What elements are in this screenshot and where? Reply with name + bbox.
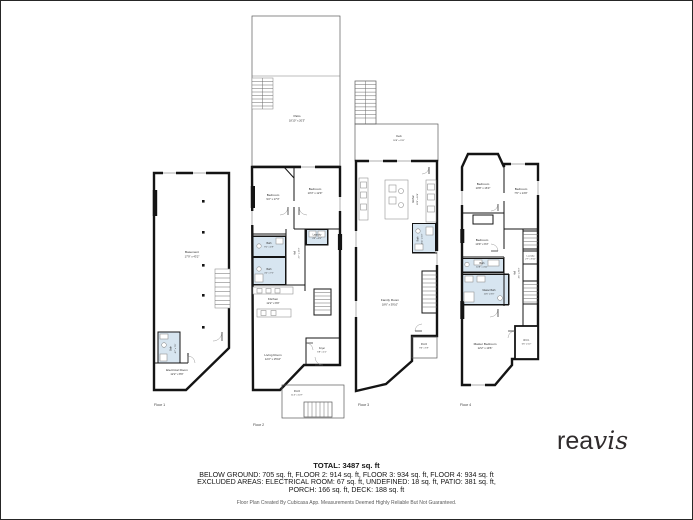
floor3-porch-dims: 9'6" x 5'9" (419, 348, 429, 350)
floor2-porch-label: Porch (294, 390, 301, 393)
total-area-text: TOTAL: 3487 sq. ft (1, 461, 692, 470)
floor4-bedroom-top-dims: 10'8" x 16'3" (476, 186, 491, 190)
floor4-wic-walls (515, 326, 538, 359)
area-summary: TOTAL: 3487 sq. ft BELOW GROUND: 705 sq.… (1, 461, 692, 506)
floor4-laundry-walls (523, 251, 538, 264)
floor2-patio-dims: 18'10" x 20'3" (289, 119, 305, 123)
floor3-bath-label: Bath (417, 236, 420, 242)
floor2-bath-upper-label: Bath (267, 242, 273, 245)
floor3-kitchen-dims: 18'6" x 16'4" (417, 193, 419, 205)
floor4-master-bedroom-label: Master Bedroom (474, 342, 497, 346)
floor4-bedroom-top-label: Bedroom (477, 182, 490, 186)
floor4-stairs-lower-icon (523, 281, 538, 304)
floor1-electrical-dims: 12'2" x 8'9" (170, 372, 183, 376)
floor2-bath-lower-label: Bath (267, 268, 273, 271)
logo-text-italic: vis (593, 426, 628, 455)
floor4-wic-label: W.I.C. (523, 339, 530, 342)
floor2-bath-lower-dims: 4'2" x 7'5" (264, 273, 274, 275)
floor1-plan: Bath 4'7" x 7'9" Basement 17'9" x 43'2" … (153, 171, 230, 407)
floor3-family-room-label: Family Room (381, 298, 400, 302)
floor3-deck-dims: 18'8" x 9'11" (393, 140, 405, 142)
floor4-hall-label: Hall (514, 270, 517, 275)
floor4-bedroom-mid-dims: 10'9" x 9'3" (475, 242, 488, 246)
floor4-bedroom-right-label: Bedroom (515, 187, 528, 191)
floor4-laundry-dims: 2'7" x 8'11" (525, 259, 536, 261)
floor1-bath-dims: 4'7" x 7'9" (175, 344, 177, 354)
floor4-bath-dims: 10'8" x 4'11" (476, 267, 488, 269)
floor4-plan: Laundry 2'7" x 8'11" W.I.C. 6'6" x 6'2" … (460, 154, 540, 407)
floor3-deck-outline (355, 124, 438, 161)
floor3-deck-label: Deck (396, 135, 402, 138)
floor4-bedroom-mid-label: Bedroom (476, 238, 489, 242)
floor3-family-room-dims: 18'6" x 39'10" (382, 303, 398, 307)
floor2-foyer-dims: 6'8" x 4'1" (317, 352, 327, 354)
floor2-kitchen-dims: 12'2" x 9'9" (266, 301, 279, 305)
floor2-bath-upper-dims: 9'1" x 4'9" (264, 247, 274, 249)
floor4-stairs-upper-icon (523, 231, 538, 249)
floor2-porch-stairs-icon (304, 402, 332, 417)
floor4-bedroom-right-dims: 7'6" x 14'9" (514, 191, 527, 195)
floor3-kitchen-counters (359, 178, 436, 222)
floor3-stairs-icon (422, 271, 437, 313)
floor4-wic-dims: 6'6" x 6'2" (522, 344, 532, 346)
floor4-master-bath-dims: 11'6" x 8'3" (484, 294, 495, 296)
floor4-hall-dims: 4'6" x 20'3" (519, 267, 521, 278)
floor2-hall-dims: 2'7" x 17'3" (299, 247, 301, 258)
floor3-kitchen-label: Kitchen (412, 194, 415, 203)
floor4-laundry-label: Laundry (527, 255, 536, 258)
floor2-porch-outline (282, 385, 344, 418)
floor2-bedroom-left-dims: 9'2" x 17'3" (266, 197, 279, 201)
floor1-caption: Floor 1 (154, 403, 165, 407)
floor2-stairs-icon (314, 289, 331, 315)
floor1-basement-dims: 17'9" x 43'2" (185, 255, 200, 259)
floor2-living-room-dims: 12'2" x 15'10" (265, 357, 281, 361)
floor4-master-bath-label: Master Bath (483, 289, 497, 292)
logo-text-regular: rea (557, 427, 593, 455)
floor3-caption: Floor 3 (358, 403, 369, 407)
floor2-foyer-label: Foyer (319, 347, 325, 350)
floor2-caption: Floor 2 (253, 423, 264, 427)
floor2-laundry-dims: 4'3" x 4'5" (312, 238, 322, 240)
floor4-master-bedroom-dims: 12'2" x 19'6" (478, 346, 493, 350)
floor2-patio-label: Patio (293, 114, 300, 118)
floor3-deck-stairs-icon (355, 81, 376, 124)
floor2-plan: Patio 18'10" x 20'3" (251, 16, 344, 427)
floor4-caption: Floor 4 (460, 403, 471, 407)
floor3-bath-dims: 4'11" x 6'3" (422, 233, 424, 244)
floor2-bedroom-left-label: Bedroom (267, 193, 280, 197)
floor2-kitchen-label: Kitchen (268, 297, 279, 301)
floor2-bedroom-right-dims: 10'3" x 12'9" (308, 191, 323, 195)
excluded-areas-text-2: PORCH: 166 sq. ft, DECK: 188 sq. ft (1, 487, 692, 495)
floor2-living-room-label: Living Room (264, 353, 282, 357)
floor2-bedroom-right-label: Bedroom (309, 187, 322, 191)
floor2-porch-dims: 11'4" x 10'7" (291, 395, 303, 397)
floor1-basement-label: Basement (185, 250, 199, 254)
disclaimer-text: Floor Plan Created By Cubicasa App. Meas… (1, 500, 692, 506)
floor1-electrical-label: Electrical Room (166, 368, 188, 372)
floor2-laundry-label: Laundry (313, 234, 322, 237)
reavis-logo: reavis (557, 426, 628, 456)
floor2-hall-label: Hall (294, 250, 297, 255)
floor1-bathroom: Bath 4'7" x 7'9" (158, 332, 180, 363)
floor4-bath-label: Bath (480, 262, 486, 265)
floorplan-sheet: Bath 4'7" x 7'9" Basement 17'9" x 43'2" … (0, 0, 693, 520)
floor1-stairs-icon (215, 269, 230, 308)
floor2-patio-stairs-icon (252, 78, 273, 109)
floor3-porch-label: Porch (421, 343, 428, 346)
floor1-bath-label: Bath (170, 345, 173, 351)
floor3-plan: Deck 18'8" x 9'11" Kitchen 18'6" x 16'4"… (354, 81, 438, 407)
